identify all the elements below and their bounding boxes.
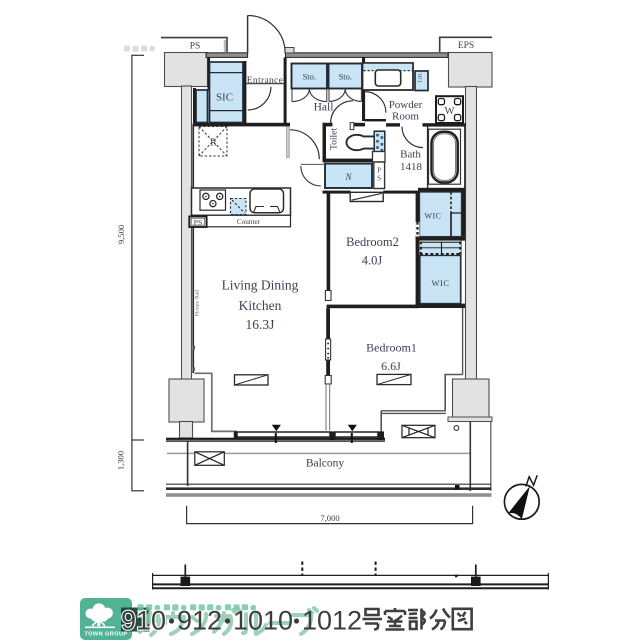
svg-text:Living Dining: Living Dining bbox=[222, 278, 299, 293]
svg-text:Powder: Powder bbox=[389, 99, 423, 111]
svg-text:Kitchen: Kitchen bbox=[239, 298, 282, 313]
svg-text:WIC: WIC bbox=[424, 212, 441, 221]
svg-text:EPS: EPS bbox=[458, 41, 474, 51]
svg-text:1010: 1010 bbox=[233, 606, 293, 636]
svg-text:1012: 1012 bbox=[302, 606, 362, 636]
svg-text:Bedroom2: Bedroom2 bbox=[346, 235, 399, 249]
svg-text:Bath: Bath bbox=[400, 149, 421, 161]
svg-text:Sto.: Sto. bbox=[303, 72, 316, 82]
svg-text:S: S bbox=[377, 176, 381, 183]
svg-text:Lin.: Lin. bbox=[416, 72, 423, 83]
svg-text:9,500: 9,500 bbox=[116, 225, 126, 244]
svg-text:N: N bbox=[344, 172, 352, 182]
svg-text:W: W bbox=[445, 106, 455, 117]
svg-text:7,000: 7,000 bbox=[320, 513, 339, 523]
svg-text:Sto.: Sto. bbox=[339, 72, 352, 82]
svg-text:4.0J: 4.0J bbox=[362, 254, 383, 268]
svg-text:Balcony: Balcony bbox=[306, 458, 345, 470]
svg-text:PS: PS bbox=[190, 42, 201, 52]
svg-text:1,300: 1,300 bbox=[116, 451, 126, 470]
svg-text:912: 912 bbox=[177, 606, 222, 636]
svg-text:WIC: WIC bbox=[431, 278, 449, 288]
svg-text:R: R bbox=[210, 138, 217, 149]
svg-text:Entrance: Entrance bbox=[247, 76, 283, 86]
svg-text:910: 910 bbox=[121, 606, 166, 636]
svg-text:PS: PS bbox=[194, 218, 203, 227]
svg-text:SIC: SIC bbox=[216, 92, 233, 104]
svg-text:P: P bbox=[377, 168, 381, 175]
svg-text:Bedroom1: Bedroom1 bbox=[366, 341, 417, 355]
svg-text:Hall: Hall bbox=[314, 102, 334, 114]
svg-text:Counter: Counter bbox=[237, 218, 261, 226]
svg-text:1418: 1418 bbox=[400, 161, 423, 173]
svg-text:16.3J: 16.3J bbox=[246, 317, 275, 332]
svg-text:Picture Rail: Picture Rail bbox=[195, 289, 201, 316]
svg-text:Room: Room bbox=[392, 111, 419, 123]
svg-text:6.6J: 6.6J bbox=[381, 359, 401, 373]
svg-text:Toilet: Toilet bbox=[330, 128, 340, 150]
